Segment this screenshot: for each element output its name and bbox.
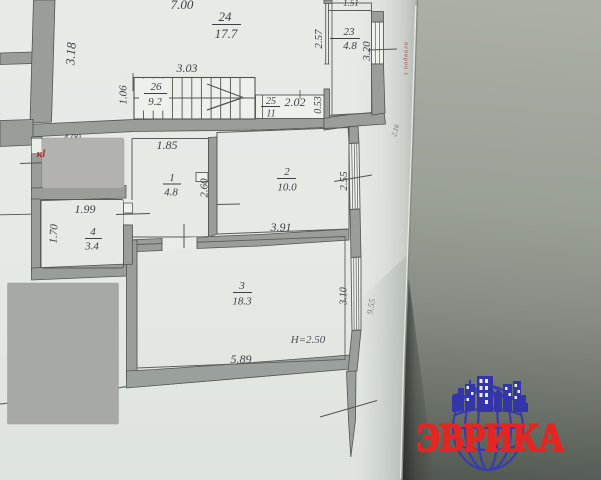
svg-text:10.0: 10.0 [277,182,297,194]
svg-text:1.06: 1.06 [118,85,130,105]
svg-text:23: 23 [344,26,356,38]
svg-text:ЭВРИКА: ЭВРИКА [416,415,564,460]
svg-text:3.4: 3.4 [84,241,99,253]
svg-text:1.51: 1.51 [343,0,359,8]
svg-text:3.10: 3.10 [339,287,350,306]
svg-text:H=2.50: H=2.50 [290,334,326,346]
svg-text:11: 11 [266,109,275,120]
svg-text:2.60: 2.60 [199,178,211,198]
svg-text:3.20: 3.20 [361,41,373,62]
svg-text:4.8: 4.8 [343,40,357,52]
svg-text:26: 26 [151,81,163,93]
svg-text:3: 3 [238,280,245,292]
svg-text:1: 1 [169,172,175,184]
svg-text:1.70: 1.70 [48,223,61,243]
svg-text:4.8: 4.8 [164,187,178,199]
svg-text:3.18: 3.18 [62,41,79,66]
svg-text:2.57: 2.57 [313,29,325,49]
svg-text:5.89: 5.89 [231,352,252,366]
svg-text:2: 2 [284,166,290,178]
svg-text:24: 24 [219,9,233,24]
svg-text:з подвала: з подвала [403,41,410,76]
svg-text:1.99: 1.99 [75,202,96,216]
svg-text:2.55: 2.55 [338,171,350,191]
svg-text:3.91: 3.91 [270,220,292,234]
svg-text:18.3: 18.3 [232,296,252,308]
svg-text:7.00: 7.00 [171,0,194,12]
svg-text:2.02: 2.02 [285,95,306,109]
svg-text:кl: кl [37,148,47,160]
svg-text:4: 4 [90,226,96,238]
svg-text:0.53: 0.53 [313,96,324,114]
svg-text:9.2: 9.2 [148,96,162,108]
svg-text:3.03: 3.03 [176,61,198,75]
svg-text:1.85: 1.85 [157,138,178,152]
svg-text:17.7: 17.7 [215,26,238,41]
svg-text:25: 25 [266,96,276,107]
